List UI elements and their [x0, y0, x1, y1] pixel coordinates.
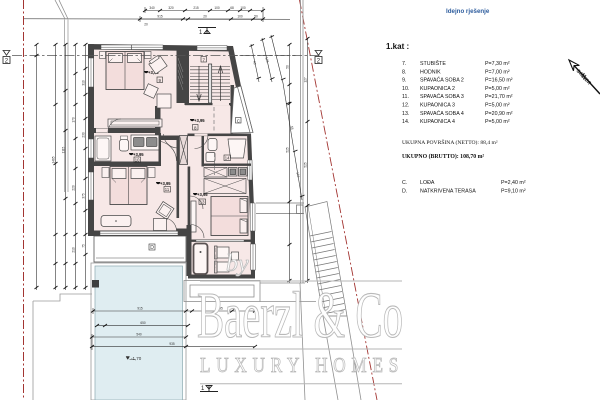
svg-text:230: 230	[82, 132, 86, 138]
svg-text:650: 650	[140, 321, 146, 325]
svg-text:P=9,10 m²: P=9,10 m²	[501, 188, 526, 194]
svg-text:KUPAONICA 4: KUPAONICA 4	[420, 119, 455, 125]
svg-text:68: 68	[230, 6, 234, 10]
svg-text:375: 375	[82, 193, 86, 199]
svg-text:20: 20	[203, 15, 207, 19]
svg-text:by: by	[226, 251, 249, 277]
svg-text:127: 127	[304, 77, 308, 83]
svg-text:1115: 1115	[62, 146, 66, 153]
svg-text:C.: C.	[402, 180, 407, 186]
svg-text:1.kat :: 1.kat :	[386, 42, 409, 51]
svg-text:12.: 12.	[402, 103, 409, 109]
svg-text:-1,70: -1,70	[131, 356, 142, 361]
svg-text:P=7,00 m²: P=7,00 m²	[485, 69, 510, 75]
svg-text:100: 100	[214, 6, 220, 10]
svg-text:UKUPNO (BRUTTO): 108,70 m²: UKUPNO (BRUTTO): 108,70 m²	[402, 153, 484, 160]
svg-text:P=5,00 m²: P=5,00 m²	[485, 103, 510, 109]
svg-text:10.: 10.	[402, 86, 409, 92]
svg-text:+3,95: +3,95	[133, 152, 144, 157]
svg-text:P=2,40 m²: P=2,40 m²	[501, 180, 526, 186]
svg-text:NATKRIVENA TERASA: NATKRIVENA TERASA	[420, 188, 476, 194]
svg-text:10: 10	[135, 158, 140, 163]
svg-text:340: 340	[149, 6, 155, 10]
svg-text:9.: 9.	[402, 78, 406, 84]
svg-text:935: 935	[169, 342, 175, 346]
svg-text:8.: 8.	[402, 69, 406, 75]
svg-text:P=5,00 m²: P=5,00 m²	[485, 86, 510, 92]
svg-text:525: 525	[304, 162, 308, 168]
svg-text:P=21,70 m²: P=21,70 m²	[485, 94, 513, 100]
svg-text:P=20,90 m²: P=20,90 m²	[485, 111, 513, 117]
svg-text:P=16,50 m²: P=16,50 m²	[485, 78, 513, 84]
svg-text:LOĐA: LOĐA	[420, 180, 435, 186]
svg-text:170: 170	[72, 117, 76, 123]
svg-text:915: 915	[157, 15, 163, 19]
svg-text:KUPAONICA 3: KUPAONICA 3	[420, 103, 455, 109]
svg-text:STUBIŠTE: STUBIŠTE	[420, 60, 446, 67]
svg-text:13: 13	[200, 200, 205, 205]
svg-text:KUPAONICA 2: KUPAONICA 2	[420, 86, 455, 92]
svg-text:13.: 13.	[402, 111, 409, 117]
svg-text:50: 50	[254, 15, 258, 19]
svg-text:D.: D.	[402, 188, 407, 194]
svg-text:75: 75	[82, 244, 86, 248]
svg-text:SPAVAĆA SOBA 3: SPAVAĆA SOBA 3	[420, 93, 464, 100]
svg-text:Idejno rješenje: Idejno rješenje	[446, 8, 490, 15]
svg-text:UKUPNA POVRŠINA (NETTO): 88,4: UKUPNA POVRŠINA (NETTO): 88,4 m²	[402, 138, 498, 146]
svg-text:SPAVAĆA SOBA 4: SPAVAĆA SOBA 4	[420, 110, 464, 117]
svg-text:HODNIK: HODNIK	[420, 69, 441, 75]
svg-text:+3,95: +3,95	[194, 118, 205, 123]
svg-text:Baerzl & Co: Baerzl & Co	[197, 279, 403, 352]
svg-text:320: 320	[168, 6, 174, 10]
svg-text:+3,95: +3,95	[197, 192, 208, 197]
svg-text:100: 100	[240, 6, 246, 10]
svg-text:11.: 11.	[402, 94, 409, 100]
svg-text:310: 310	[82, 80, 86, 86]
svg-text:SPAVAĆA SOBA 2: SPAVAĆA SOBA 2	[420, 77, 464, 84]
svg-text:11: 11	[165, 187, 170, 192]
svg-text:14: 14	[225, 156, 230, 161]
svg-text:P=7,30 m²: P=7,30 m²	[485, 61, 510, 67]
svg-text:915: 915	[137, 307, 143, 311]
svg-text:7.: 7.	[402, 61, 406, 67]
svg-text:+3,95: +3,95	[160, 181, 171, 186]
svg-text:LUXURY HOMES: LUXURY HOMES	[200, 353, 404, 377]
svg-text:100: 100	[237, 15, 243, 19]
svg-text:220: 220	[72, 185, 76, 191]
svg-text:20: 20	[144, 23, 148, 27]
svg-text:50: 50	[286, 65, 290, 69]
svg-text:D: D	[150, 245, 154, 251]
svg-text:14.: 14.	[402, 119, 409, 125]
svg-text:540: 540	[136, 333, 142, 337]
svg-text:1465: 1465	[52, 156, 56, 163]
svg-text:P=5,00 m²: P=5,00 m²	[485, 119, 510, 125]
svg-text:525: 525	[286, 147, 290, 153]
svg-text:215: 215	[193, 6, 199, 10]
svg-text:210: 210	[72, 247, 76, 253]
